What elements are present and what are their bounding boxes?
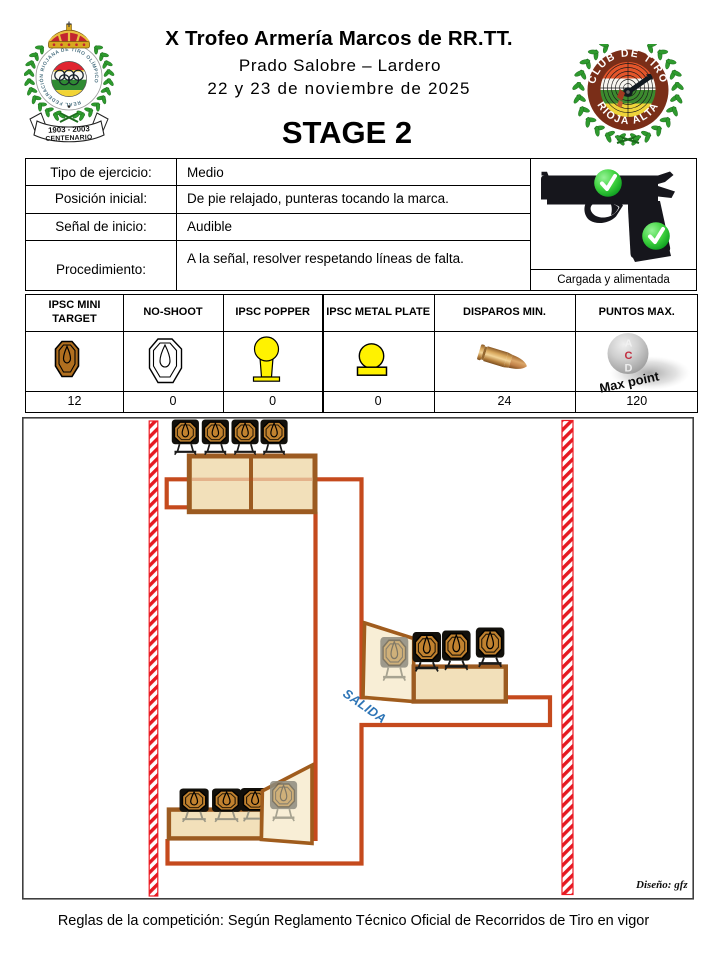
svg-text:D: D (625, 363, 633, 375)
svg-text:C: C (625, 350, 633, 362)
svg-text:A: A (625, 338, 633, 350)
svg-text:Diseño: gfz: Diseño: gfz (635, 879, 688, 891)
